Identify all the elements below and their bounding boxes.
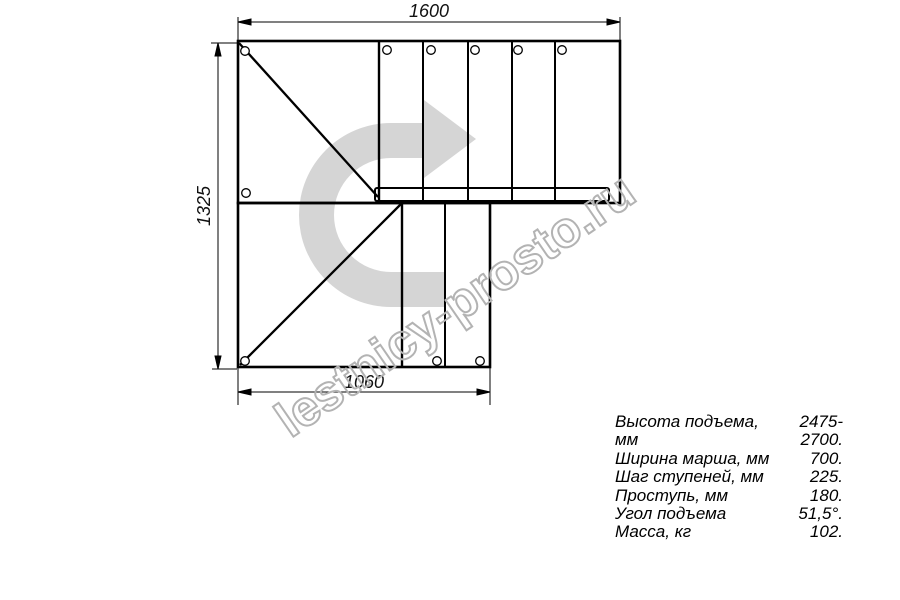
hole [433,357,442,366]
spec-row: Масса, кг 102. [615,523,843,541]
dim-arrowhead [238,389,251,395]
spec-label: Угол подъема [615,505,726,523]
spec-label: Шаг ступеней, мм [615,468,764,486]
spec-row: Высота подъема, мм 2475-2700. [615,413,843,450]
hole [241,47,250,56]
spec-label: Масса, кг [615,523,691,541]
spec-label: Высота подъема, мм [615,413,767,450]
stair-drawing-canvas: 1600 1325 1060 lestnicy-prosto.ru Высота… [0,0,900,600]
spec-value: 700. [810,450,843,468]
upper-platform-diagonal [239,43,378,197]
dimension-value: 1325 [194,185,214,226]
spec-row: Угол подъема 51,5°. [615,505,843,523]
spec-value: 102. [810,523,843,541]
spec-row: Шаг ступеней, мм 225. [615,468,843,486]
dimension-left-1325: 1325 [194,43,237,369]
spec-row: Ширина марша, мм 700. [615,450,843,468]
hole [383,46,392,55]
spec-value: 2475-2700. [767,413,843,450]
dim-arrowhead [477,389,490,395]
spec-row: Проступь, мм 180. [615,487,843,505]
spec-label: Ширина марша, мм [615,450,769,468]
spec-label: Проступь, мм [615,487,728,505]
dim-arrowhead [238,19,251,25]
hole [427,46,436,55]
dim-arrowhead [215,43,221,56]
dim-arrowhead [215,356,221,369]
spec-value: 225. [810,468,843,486]
hole [476,357,485,366]
hole [471,46,480,55]
dim-arrowhead [607,19,620,25]
hole [241,357,250,366]
hole [242,189,251,198]
spec-table: Высота подъема, мм 2475-2700. Ширина мар… [615,413,843,542]
dimension-value: 1600 [409,1,449,21]
hole [514,46,523,55]
spec-value: 180. [810,487,843,505]
dimension-top-1600: 1600 [238,1,620,40]
hole [558,46,567,55]
spec-value: 51,5°. [798,505,843,523]
